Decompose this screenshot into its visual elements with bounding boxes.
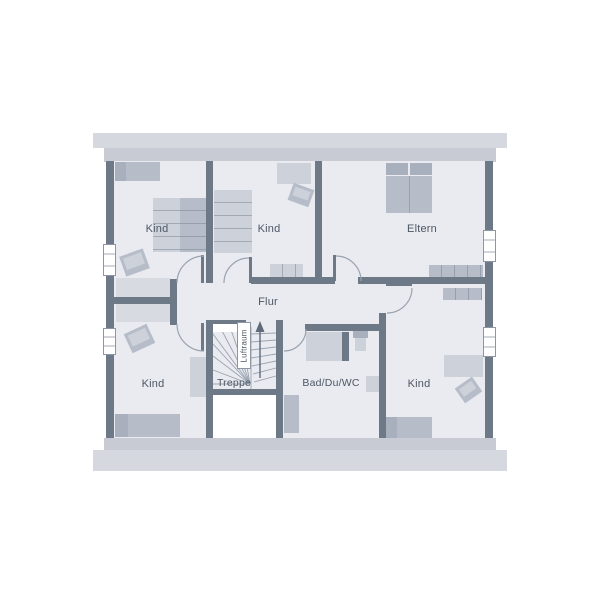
double-bed-eltern <box>386 176 432 213</box>
wall-exterior-left-upper <box>106 161 114 244</box>
bed-pillow-eltern-right <box>410 163 432 175</box>
room-label-bad: Bad/Du/WC <box>302 377 359 389</box>
wardrobe-kind-top-middle <box>214 190 252 253</box>
wall-exterior-right-lower <box>485 357 493 438</box>
wall-stair-right <box>276 320 283 438</box>
dresser-kind-bottom-right <box>443 288 482 300</box>
wall-kind-left-divider <box>114 297 172 304</box>
wall-exterior-left-lower <box>106 355 114 438</box>
bed-kind-bottom-left <box>128 414 180 437</box>
wall-stair-left <box>206 320 213 438</box>
wall-kind1-kind2 <box>206 161 213 283</box>
room-label-luftraum: Luftraum <box>240 329 249 362</box>
bed-pillow-kind-bottom-right <box>386 417 397 438</box>
eave-bar-top-inner <box>104 148 496 162</box>
desk-kind-bottom-right <box>444 355 483 377</box>
door-leaf-kind-bottom-right <box>386 283 412 286</box>
room-label-eltern: Eltern <box>407 223 437 235</box>
stair-landing-notch <box>213 324 237 332</box>
room-label-kind-top-left: Kind <box>146 223 169 235</box>
shower-bad <box>306 332 342 361</box>
bed-pillow-kind-bottom-left <box>115 414 128 437</box>
bed-pillow-eltern-left <box>386 163 408 175</box>
wall-exterior-left-middle <box>106 276 114 328</box>
wall-eltern-door-stub <box>315 277 335 284</box>
door-leaf-kind-top-middle <box>249 257 252 283</box>
bed-kind-bottom-right <box>397 417 432 438</box>
dresser-kind-top-left <box>116 278 170 297</box>
wall-bad-north <box>305 324 386 331</box>
door-leaf-kind-bottom-left <box>201 323 204 351</box>
dresser-kind-bottom-left <box>116 304 170 322</box>
bed-pillow-kind-top-left <box>115 162 126 181</box>
wall-bad-partition <box>342 332 349 361</box>
wall-exterior-right-upper <box>485 161 493 230</box>
room-label-flur: Flur <box>258 296 278 308</box>
cabinet-bad <box>284 395 299 433</box>
washbasin-bad <box>366 376 379 392</box>
wall-bad-kind-right <box>379 313 386 438</box>
wall-exterior-right-middle <box>485 262 493 327</box>
room-label-kind-bottom-right: Kind <box>408 378 431 390</box>
eave-bar-bottom-outer <box>93 450 507 471</box>
door-leaf-eltern <box>333 255 336 281</box>
room-label-kind-top-middle: Kind <box>258 223 281 235</box>
room-label-kind-bottom-left: Kind <box>142 378 165 390</box>
wall-eltern-south <box>358 277 485 284</box>
wardrobe-kind-bottom-left <box>190 357 206 397</box>
wardrobe-kind-top-left-b <box>180 198 206 252</box>
wc-bowl-bad <box>355 338 366 351</box>
eave-bar-bottom-inner <box>104 438 496 450</box>
stairwell-void <box>213 395 276 438</box>
wc-tank-bad <box>353 331 368 338</box>
door-leaf-kind-top-left <box>201 255 204 283</box>
bed-kind-top-left <box>126 162 160 181</box>
luftraum-void-box: Luftraum <box>237 322 251 369</box>
wall-flur-north <box>251 277 315 284</box>
bed-kind-top-middle <box>277 163 311 184</box>
eave-bar-top-outer <box>93 133 507 148</box>
wall-kind2-eltern <box>315 161 322 281</box>
room-label-treppe: Treppe <box>217 377 251 389</box>
floorplan-canvas: Kind Kind Eltern Flur Kind Treppe Bad/Du… <box>0 0 600 600</box>
